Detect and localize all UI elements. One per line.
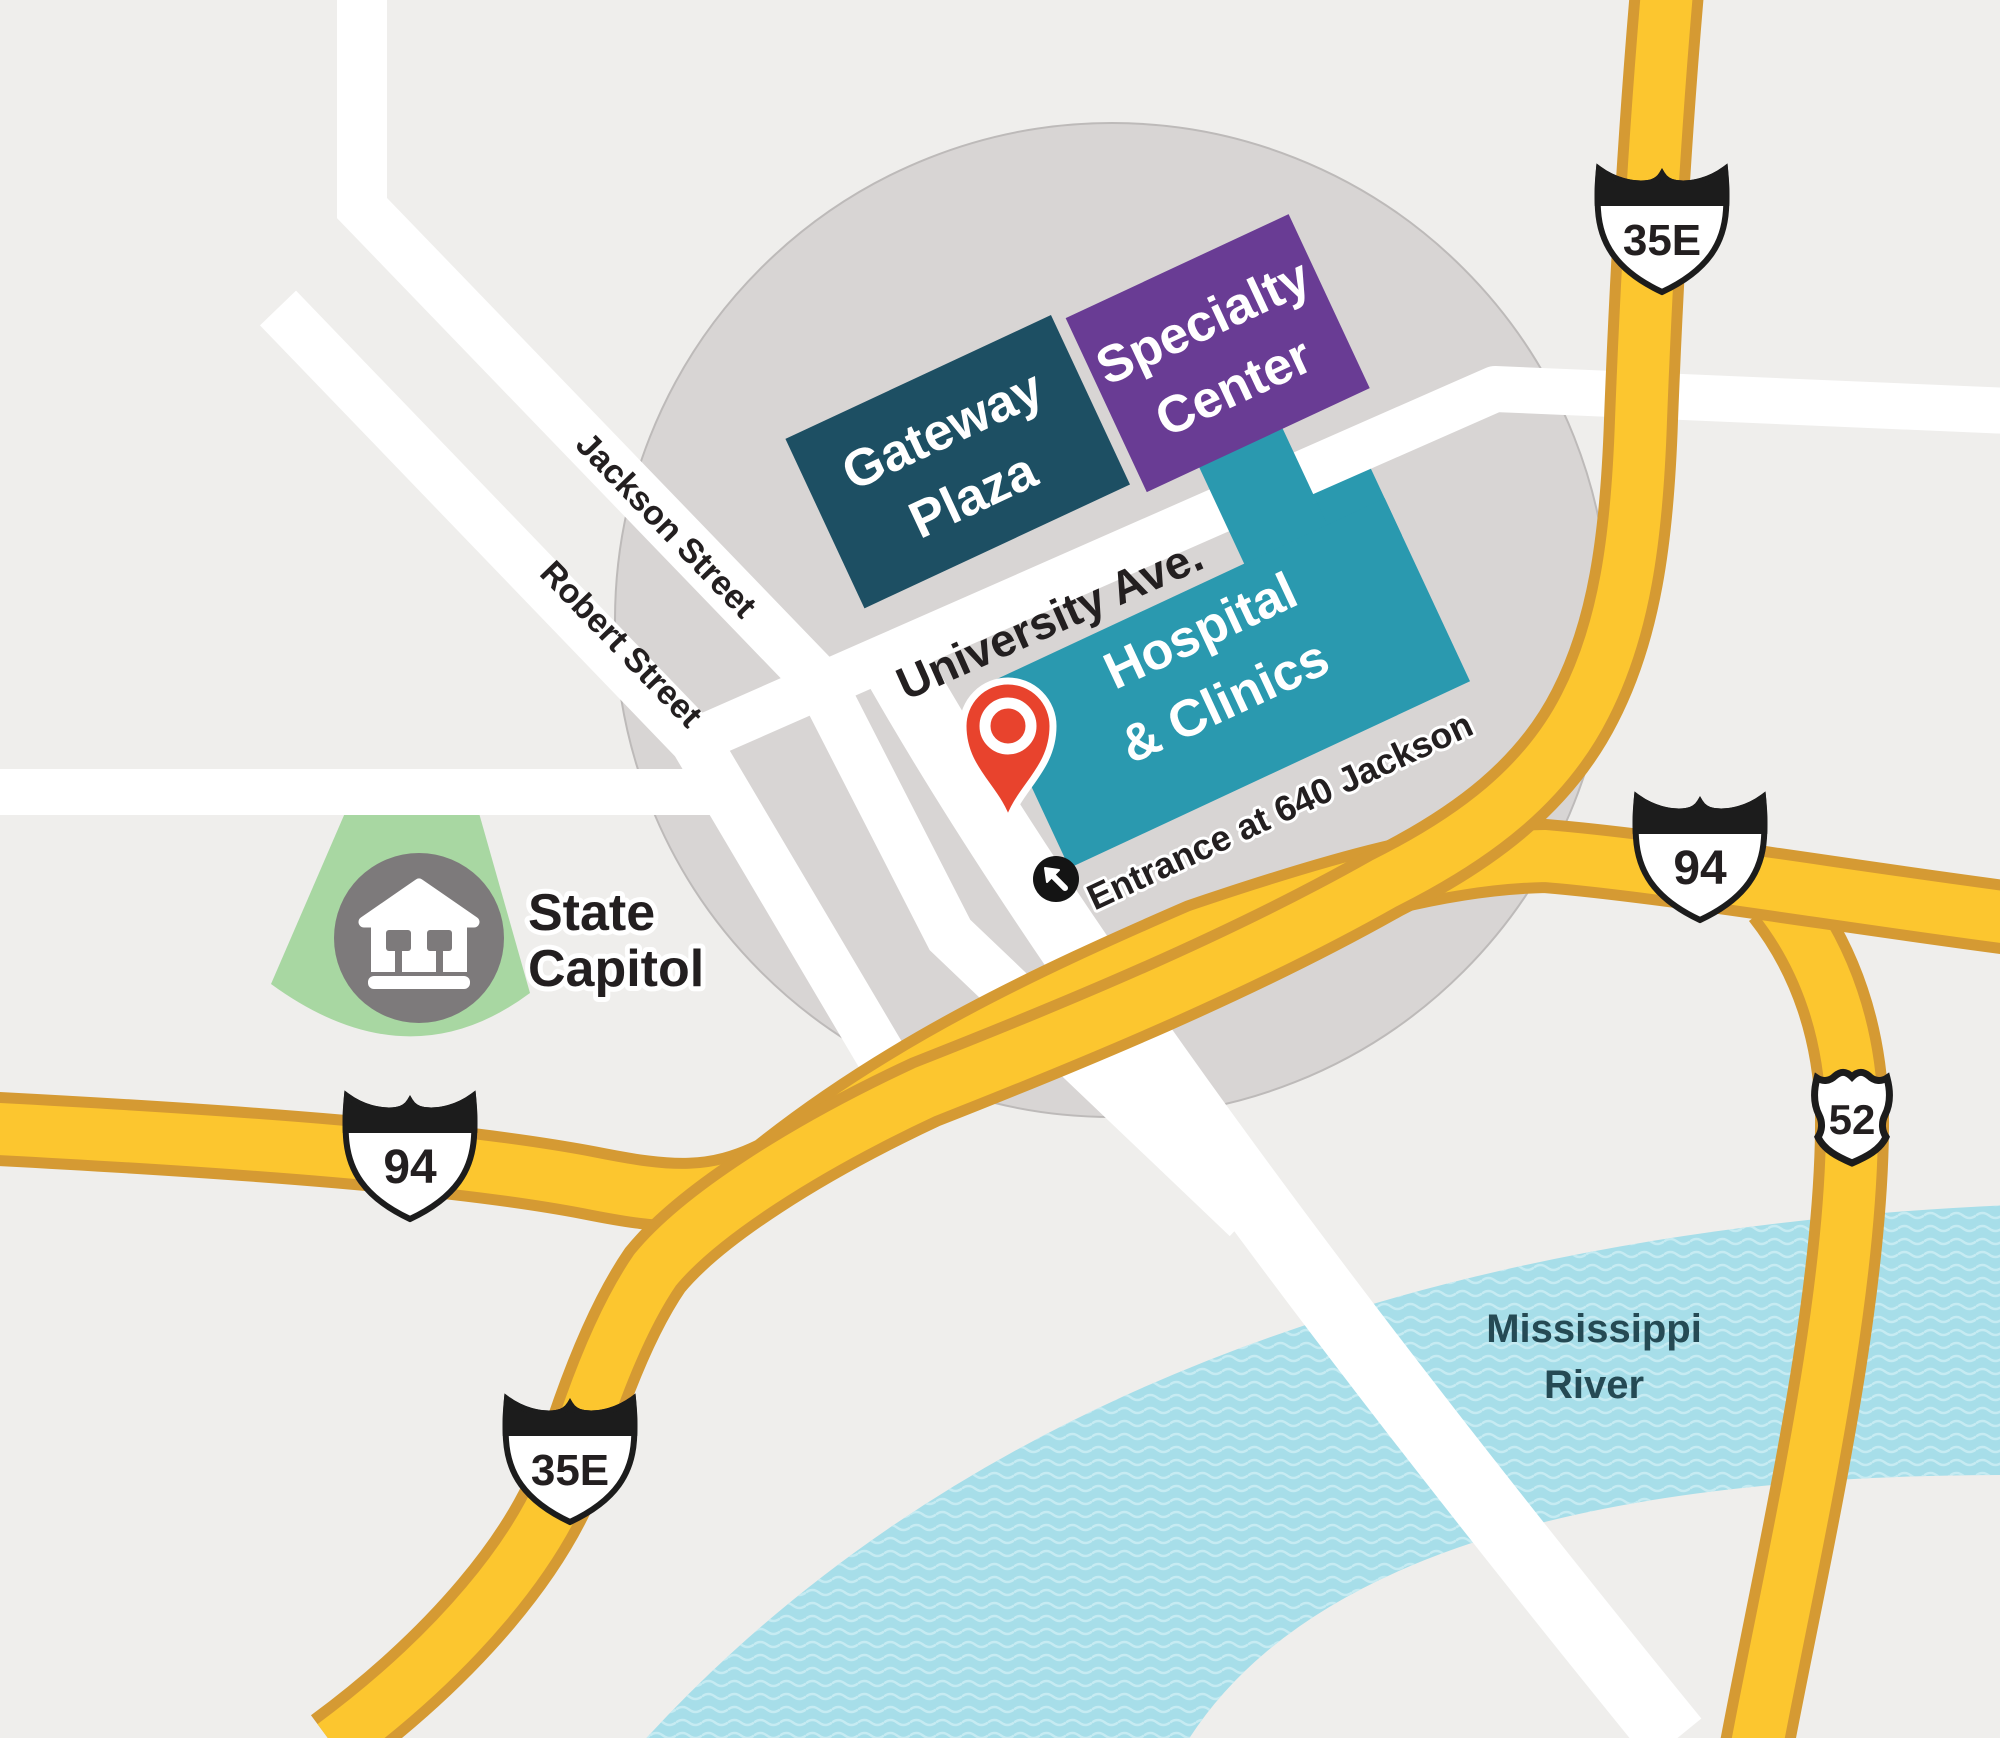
svg-text:94: 94 bbox=[383, 1141, 437, 1194]
svg-text:River: River bbox=[1544, 1363, 1644, 1407]
svg-text:35E: 35E bbox=[531, 1446, 609, 1495]
svg-text:35E: 35E bbox=[1623, 216, 1701, 265]
svg-text:Mississippi: Mississippi bbox=[1486, 1307, 1702, 1351]
svg-text:94: 94 bbox=[1673, 842, 1727, 895]
svg-text:Capitol: Capitol bbox=[528, 940, 704, 998]
svg-text:State: State bbox=[528, 884, 655, 942]
svg-text:52: 52 bbox=[1829, 1096, 1876, 1143]
